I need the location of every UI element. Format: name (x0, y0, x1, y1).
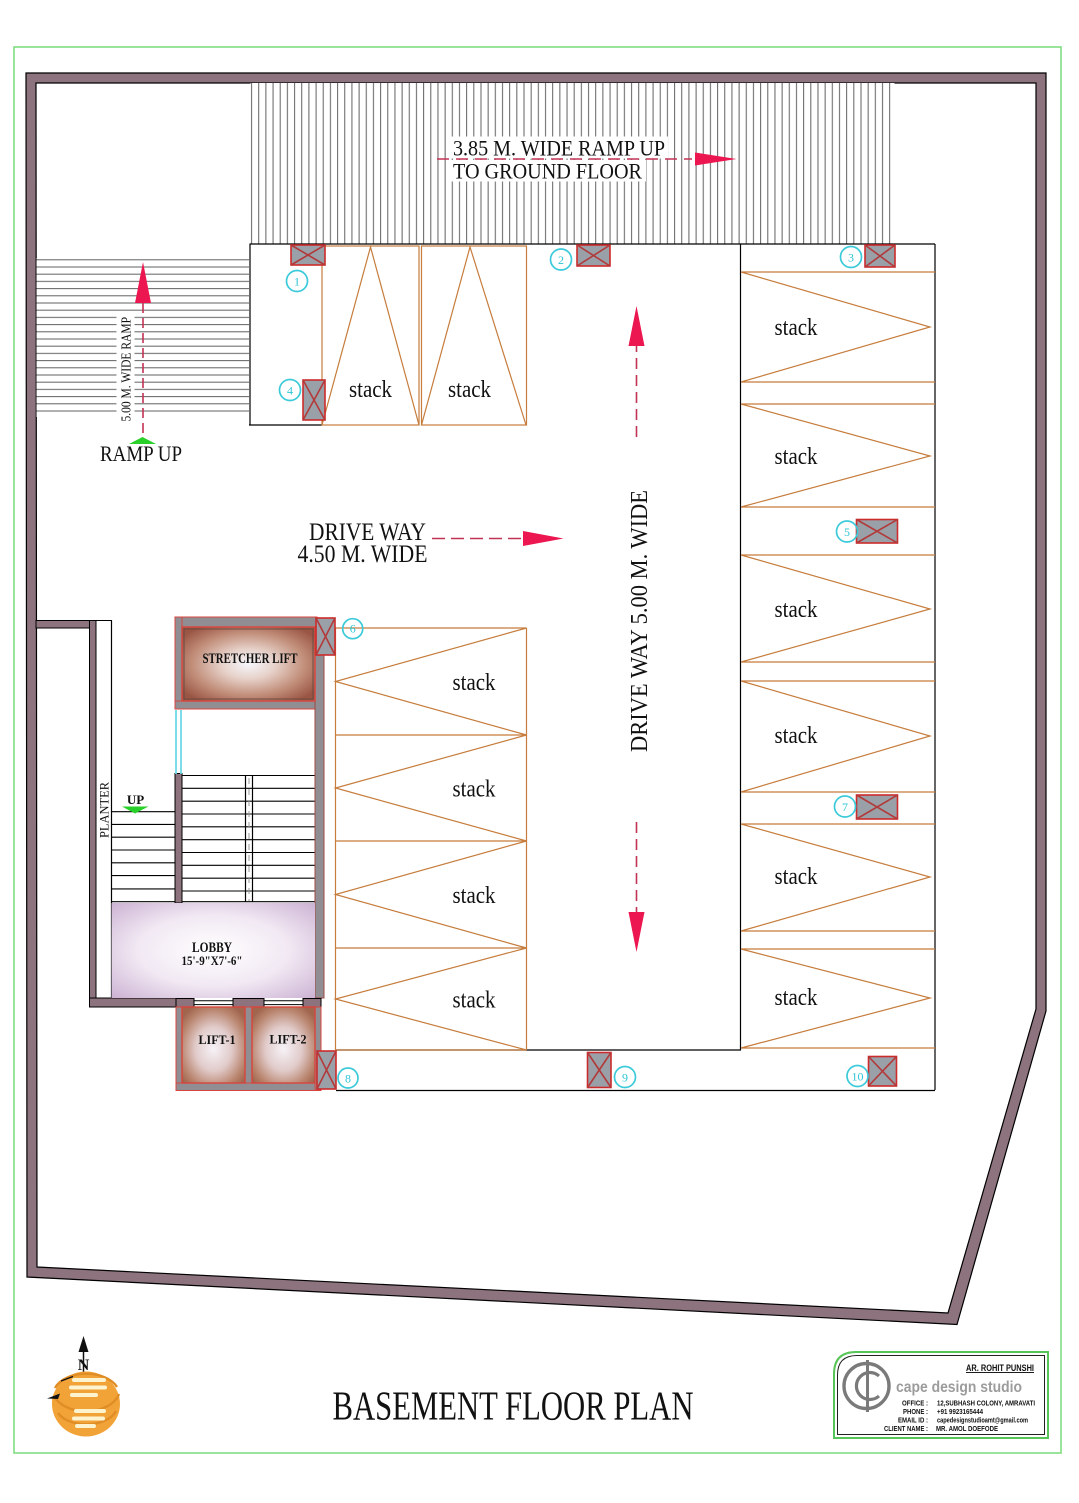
svg-text:STRETCHER LIFT: STRETCHER LIFT (203, 651, 298, 667)
svg-text:stack: stack (448, 377, 491, 403)
svg-text:stack: stack (775, 985, 818, 1011)
svg-text:stack: stack (775, 597, 818, 623)
svg-text:5.00 M. WIDE RAMP: 5.00 M. WIDE RAMP (120, 317, 135, 422)
svg-text:DRIVE WAY 5.00 M. WIDE: DRIVE WAY 5.00 M. WIDE (627, 490, 653, 752)
svg-text:8: 8 (345, 1072, 351, 1086)
svg-text:10: 10 (852, 1070, 864, 1084)
svg-text:stack: stack (775, 864, 818, 890)
svg-text:UP: UP (127, 792, 144, 807)
svg-text:6: 6 (350, 622, 356, 636)
svg-text:cape design studio: cape design studio (896, 1379, 1022, 1396)
svg-text:stack: stack (775, 723, 818, 749)
svg-text:2: 2 (558, 253, 564, 267)
svg-text:PLANTER: PLANTER (97, 782, 112, 838)
svg-text:BASEMENT FLOOR PLAN: BASEMENT FLOOR PLAN (333, 1383, 694, 1429)
svg-text:LIFT-2: LIFT-2 (270, 1032, 307, 1047)
svg-text:stack: stack (453, 670, 496, 696)
svg-text:AR. ROHIT PUNSHI: AR. ROHIT PUNSHI (966, 1363, 1034, 1374)
svg-text:RAMP UP: RAMP UP (100, 441, 182, 466)
svg-text:MR. AMOL DOEFODE: MR. AMOL DOEFODE (936, 1424, 998, 1433)
svg-text:stack: stack (453, 988, 496, 1014)
svg-text:stack: stack (453, 883, 496, 909)
svg-text:5: 5 (844, 525, 850, 539)
svg-text:3: 3 (848, 251, 854, 265)
svg-text:9: 9 (622, 1071, 628, 1085)
svg-text:stack: stack (453, 777, 496, 803)
svg-text:LIFT-1: LIFT-1 (199, 1032, 236, 1047)
svg-text:1: 1 (294, 275, 300, 289)
svg-text:TO GROUND FLOOR: TO GROUND FLOOR (453, 159, 642, 184)
svg-text:4: 4 (287, 384, 293, 398)
svg-text:stack: stack (349, 377, 392, 403)
svg-text:3.85 M. WIDE RAMP UP: 3.85 M. WIDE RAMP UP (453, 136, 665, 161)
svg-text:7: 7 (842, 800, 848, 814)
svg-text:N: N (78, 1357, 90, 1374)
svg-text:CLIENT NAME :: CLIENT NAME : (884, 1424, 928, 1433)
svg-text:stack: stack (775, 444, 818, 470)
svg-text:stack: stack (775, 315, 818, 341)
svg-text:15'-9"X7'-6": 15'-9"X7'-6" (182, 953, 243, 968)
svg-text:4.50 M. WIDE: 4.50 M. WIDE (298, 541, 428, 568)
